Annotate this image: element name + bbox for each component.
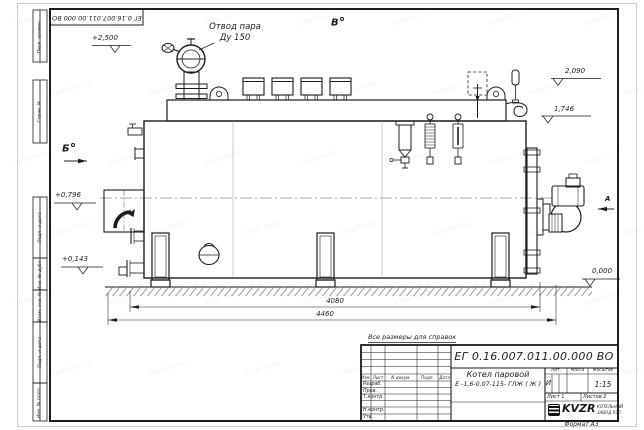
header-massa: Масса [567,369,588,375]
company-logo-icon [548,404,560,416]
drawing-sheet: kotel-kv.kzkotel-kv.kzkotel-kv.kzkotel-k… [0,0,644,430]
company-logo-text: KVZR [562,403,595,415]
doc-number-top: ЕГ 0.16.007.011.00.000 ВО [52,14,142,21]
dimension-4460: 4460 [308,310,342,319]
lifting-lugs [210,87,505,100]
level-mark-2500: +2,500 [92,35,118,42]
top-right-fittings [468,70,527,118]
header-data: Дата [438,375,451,381]
title-block-designation: ЕГ 0.16.007.011.00.000 ВО [452,348,616,366]
sheet-number-cell: Лист 1 [547,395,564,400]
support-legs [151,233,510,287]
row-utv: Утв. [363,415,373,420]
sheets-total-cell: Листов 2 [583,395,606,400]
level-instruments [390,114,463,168]
reference-note: Все размеры для справок [368,334,456,343]
format-label: Формат А3 [545,421,618,429]
manhole [199,244,219,265]
steam-outlet-label-line1: Отвод пара [203,22,267,32]
view-b-index-circle [71,143,75,147]
graph-podp-data-1: Подп. и дата [33,197,47,258]
view-label-b: Б [62,143,75,155]
view-v-index-circle [340,17,344,21]
header-izm: Изм. [361,375,371,381]
steam-outlet-label-line2: Ду 150 [203,33,267,43]
ground-hatch [105,287,592,296]
lit-value: И [545,377,552,390]
header-lit: Лит. [545,369,567,375]
left-wall-fittings [119,124,144,277]
header-podp: Подп. [417,375,438,381]
row-t-kontr: Т.контр. [363,395,384,400]
company-name-line1: КОТЕЛЬНЫЙ [597,405,623,409]
graph-inv-podl: Инв. № подл. [33,383,47,421]
header-masshtab: Масштаб [588,369,618,375]
doc-number-top-box: ЕГ 0.16.007.011.00.000 ВО [50,9,143,25]
safety-valve-boxes [243,78,351,100]
header-n-dokum: N докум. [385,375,417,381]
level-mark-2090: 2,090 [565,68,585,75]
level-marks [54,43,620,286]
graph-podp-data-2: Подп. и дата [33,322,47,383]
dimension-4080: 4080 [318,297,352,306]
header-list: Лист [371,375,385,381]
graph-vzam-inv: Взам. инв. № [33,290,47,322]
graph-perv-primen: Перв. примен. [33,10,47,62]
view-label-v: В [331,17,344,29]
boiler-side-view [54,39,620,325]
level-mark-0143: +0,143 [62,256,88,263]
level-mark-0796: +0,796 [55,192,81,199]
row-prov: Пров. [363,389,377,394]
front-fitting-box [104,190,144,232]
graph-sprav-no: Справ. № [33,80,47,143]
view-label-a: А [605,196,610,203]
product-name-line2: Е -1,6-0,07-115- ГЛЖ ( Ж ) [452,380,544,391]
company-name-line2: ЗАВОД РЭП [597,411,621,415]
row-razrab: Разраб. [363,382,382,387]
level-mark-0000: 0,000 [592,268,612,275]
graph-inv-dubl: Инв. № дубл. [33,258,47,290]
level-mark-1746: 1,746 [554,106,574,113]
steam-outlet-valve [162,39,207,100]
scale-value: 1:15 [588,379,618,390]
burner-assembly [524,148,584,274]
row-n-kontr: Н.контр. [363,408,384,413]
